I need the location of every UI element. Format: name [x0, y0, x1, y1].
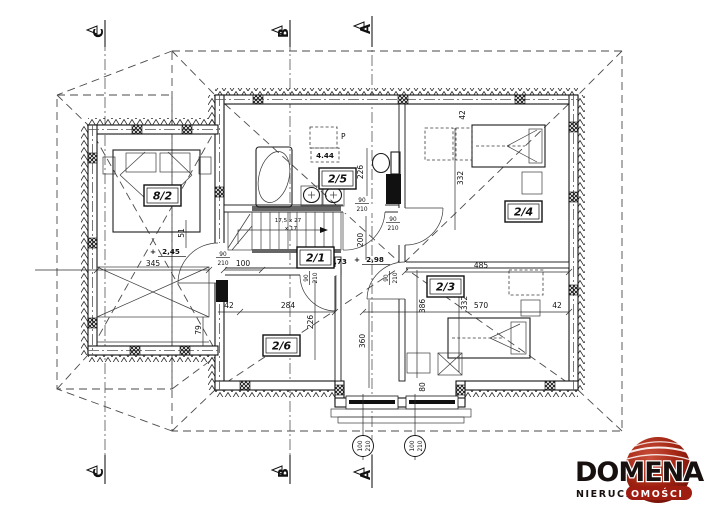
room-label-bedroom-ne: 2/4 — [505, 201, 542, 222]
svg-text:210: 210 — [393, 272, 399, 283]
svg-text:90: 90 — [384, 274, 390, 282]
bed-single-ne — [472, 125, 545, 167]
window-sill — [349, 400, 395, 404]
svg-text:90: 90 — [304, 274, 310, 282]
section-marker-c-top: C — [87, 20, 107, 47]
washer: P — [310, 127, 346, 148]
door-bedroom-left — [178, 243, 218, 283]
section-letter: B — [277, 468, 292, 478]
dim: 42 — [552, 301, 562, 310]
south-bay — [331, 381, 471, 423]
svg-text:100: 100 — [358, 440, 364, 451]
pillow — [529, 129, 542, 163]
dim: 386 — [418, 299, 427, 314]
dim: 485 — [474, 261, 489, 270]
logo-sub-red: OMOŚCI — [631, 488, 684, 500]
svg-text:90: 90 — [219, 252, 227, 258]
svg-text:2,98: 2,98 — [366, 255, 384, 264]
chair — [521, 300, 540, 316]
window-size-left: 100 210 — [353, 436, 374, 457]
dim: 226 — [356, 165, 365, 180]
dim: 226 — [306, 315, 315, 330]
svg-text:+: + — [150, 247, 156, 256]
svg-text:4.44: 4.44 — [316, 151, 334, 160]
section-marker-b-bottom: B — [272, 455, 292, 484]
level-mark: + 2,98 — [354, 255, 390, 265]
attic-storage — [97, 267, 209, 342]
insulation-band — [88, 355, 218, 362]
washer-label: P — [341, 132, 346, 141]
dim: 100 — [236, 259, 251, 268]
area-label: 4.44 — [311, 148, 339, 162]
dim: 570 — [474, 301, 489, 310]
section-marker-a-bottom: A — [354, 455, 374, 488]
svg-text:2/3: 2/3 — [436, 281, 456, 294]
bed-single-se — [448, 318, 530, 358]
heater — [216, 280, 228, 302]
dim: 80 — [418, 382, 427, 392]
svg-text:2/5: 2/5 — [328, 173, 348, 186]
insulation-band — [578, 95, 585, 390]
floor-plan-drawing: C B A C B A — [0, 0, 705, 514]
section-marker-a-top: A — [354, 16, 374, 47]
room-label-room-sw: 2/6 — [263, 335, 300, 356]
svg-text:210: 210 — [313, 272, 319, 283]
dim: 200 — [356, 233, 365, 248]
dim: 51 — [177, 228, 186, 238]
floor-plan-sheet: C B A C B A — [0, 0, 705, 514]
room-label-bedroom-se: 2/3 — [427, 276, 464, 297]
dim: 79 — [194, 325, 203, 335]
window-sill — [409, 400, 455, 404]
staircase: 17,5 x 27 x 17 — [228, 206, 341, 253]
section-letter: A — [359, 470, 374, 480]
insulation-band — [215, 88, 578, 95]
svg-text:2,45: 2,45 — [162, 247, 180, 256]
svg-text:210: 210 — [366, 440, 372, 451]
insulation-band — [465, 390, 578, 397]
svg-text:2/6: 2/6 — [272, 340, 292, 353]
cabinet — [407, 353, 430, 373]
dim: 284 — [281, 301, 296, 310]
svg-text:210: 210 — [217, 261, 228, 267]
nightstand — [199, 157, 211, 174]
svg-text:100: 100 — [410, 440, 416, 451]
svg-text:210: 210 — [356, 207, 367, 213]
svg-text:210: 210 — [387, 226, 398, 232]
svg-text:210: 210 — [418, 440, 424, 451]
dim: 332 — [456, 171, 465, 186]
wardrobe — [456, 128, 472, 160]
svg-text:2/1: 2/1 — [306, 252, 325, 265]
door-bedroom-ne — [405, 208, 443, 245]
dim: 345 — [146, 259, 161, 268]
svg-text:+: + — [354, 255, 360, 264]
room-label-bathroom: 2/5 — [319, 168, 356, 189]
insulation-band — [215, 390, 335, 397]
section-letter: A — [359, 24, 374, 34]
toilet — [373, 152, 401, 174]
logo-name: DOMENA — [575, 457, 704, 488]
room-label-bedroom-left: 8/2 — [144, 185, 181, 206]
svg-text:90: 90 — [358, 198, 366, 204]
agency-logo: DOMENA NIERUCH OMOŚCI — [575, 437, 704, 503]
desk — [509, 270, 543, 295]
bathtub — [253, 147, 295, 207]
chimney — [386, 174, 401, 204]
dim: 332 — [460, 296, 469, 311]
section-letter: C — [92, 468, 107, 478]
entrance-step — [331, 409, 471, 417]
svg-text:2/4: 2/4 — [514, 206, 533, 219]
window-size-right: 100 210 — [405, 436, 426, 457]
section-marker-c-bottom: C — [87, 455, 107, 484]
section-letter: C — [92, 28, 107, 38]
level-mark: + 2,45 — [150, 247, 186, 257]
shaft — [438, 353, 462, 375]
wardrobe — [425, 128, 453, 160]
stair-spec: 17,5 x 27 — [275, 218, 302, 224]
svg-text:90: 90 — [389, 217, 397, 223]
insulation-band — [81, 125, 88, 355]
entrance-step — [338, 417, 464, 423]
section-marker-b-top: B — [272, 20, 292, 47]
svg-text:8/2: 8/2 — [153, 190, 173, 203]
dim: 42 — [224, 301, 234, 310]
dim: 360 — [358, 334, 367, 349]
insulation-band — [88, 118, 218, 125]
dim: 42 — [458, 110, 467, 120]
room-label-hall: 2/1 — [297, 247, 334, 268]
section-letter: B — [277, 28, 292, 38]
stair-spec: x 17 — [285, 226, 298, 232]
door-size: 90 210 — [386, 217, 400, 232]
nightstand — [522, 172, 542, 194]
